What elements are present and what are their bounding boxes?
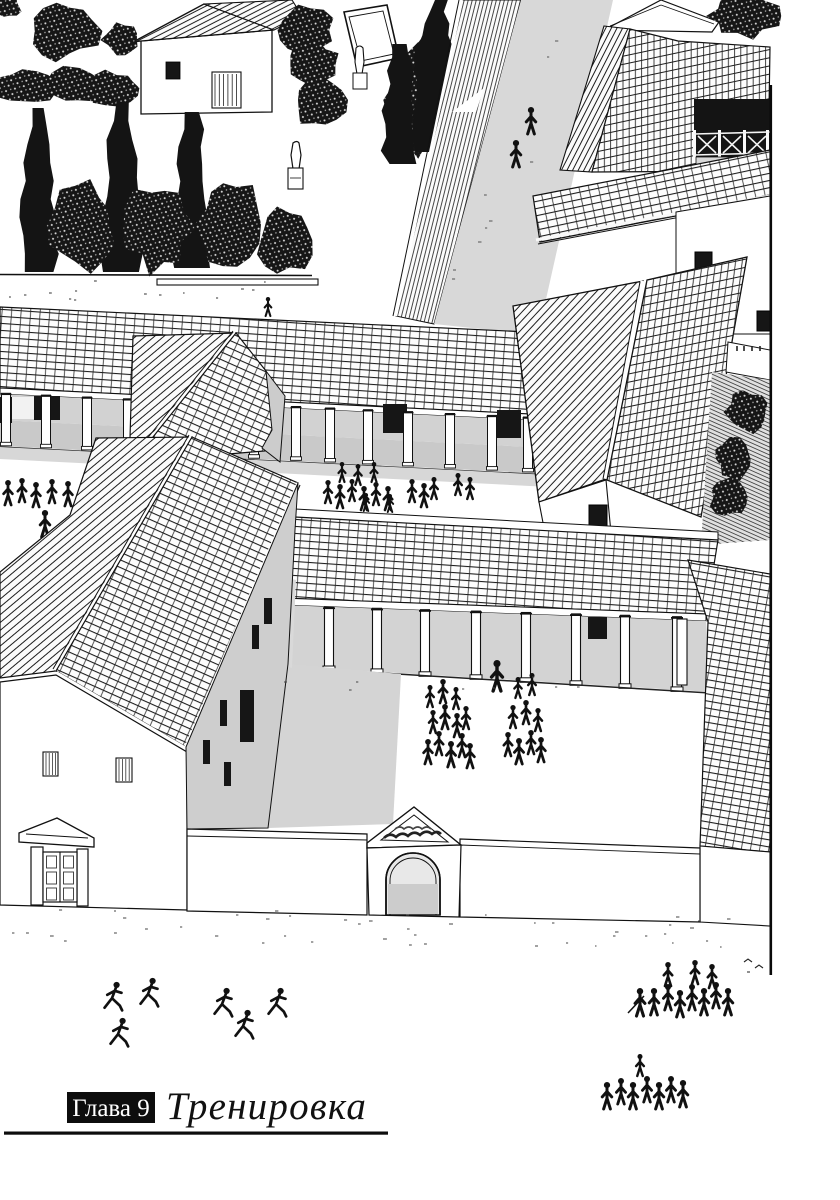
svg-text:Тренировка: Тренировка — [166, 1085, 367, 1128]
svg-text:Глава 9: Глава 9 — [72, 1095, 149, 1122]
